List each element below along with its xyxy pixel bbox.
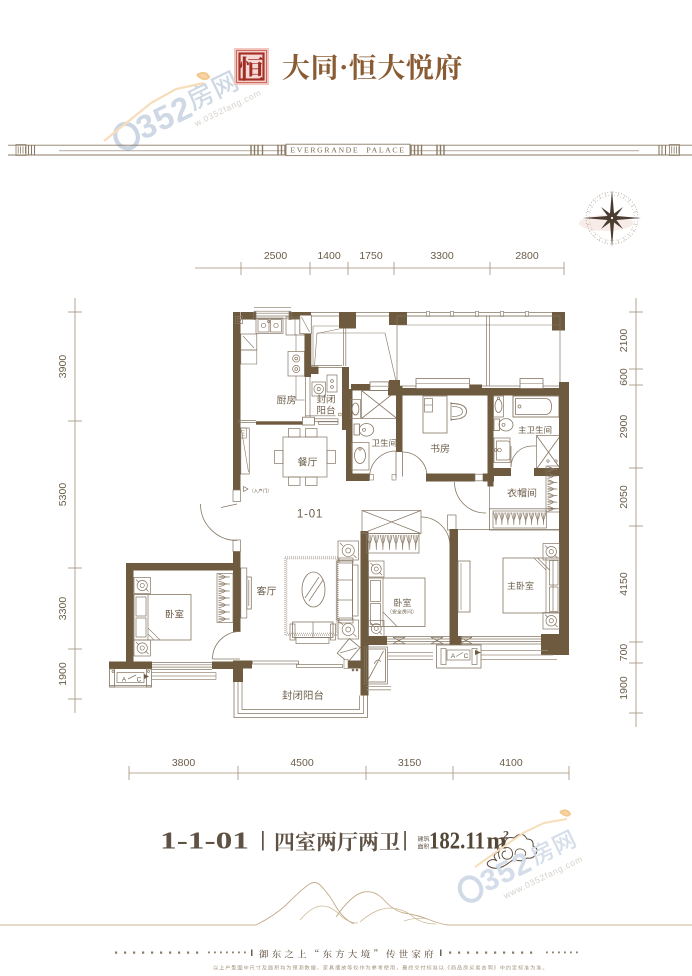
svg-text:182.11: 182.11 [429,829,485,855]
svg-text:C: C [137,677,142,684]
svg-text:5300: 5300 [57,483,69,507]
svg-text:C: C [464,653,469,660]
svg-text:2900: 2900 [618,415,630,439]
svg-text:3800: 3800 [172,757,196,769]
svg-text:1900: 1900 [618,676,630,700]
svg-text:2800: 2800 [515,250,539,262]
svg-text:4500: 4500 [290,757,314,769]
svg-text:1-01: 1-01 [297,509,323,521]
svg-text:3300: 3300 [430,250,454,262]
svg-text:2500: 2500 [264,250,288,262]
svg-text:1400: 1400 [317,250,341,262]
svg-text:3150: 3150 [398,757,422,769]
svg-text:2050: 2050 [618,485,630,509]
svg-text:1750: 1750 [359,250,383,262]
svg-text:4150: 4150 [618,572,630,596]
svg-text:A: A [451,653,456,660]
svg-text:3900: 3900 [57,355,69,379]
svg-text:1900: 1900 [57,662,69,686]
svg-text:EVERGRANDE PALACE: EVERGRANDE PALACE [290,146,405,155]
svg-text:1-1-01: 1-1-01 [160,829,249,855]
svg-text:A: A [122,677,127,684]
svg-text:600: 600 [618,368,630,386]
svg-text:4100: 4100 [499,757,523,769]
svg-text:700: 700 [618,644,630,662]
svg-text:3300: 3300 [57,597,69,621]
svg-text:2100: 2100 [618,329,630,353]
